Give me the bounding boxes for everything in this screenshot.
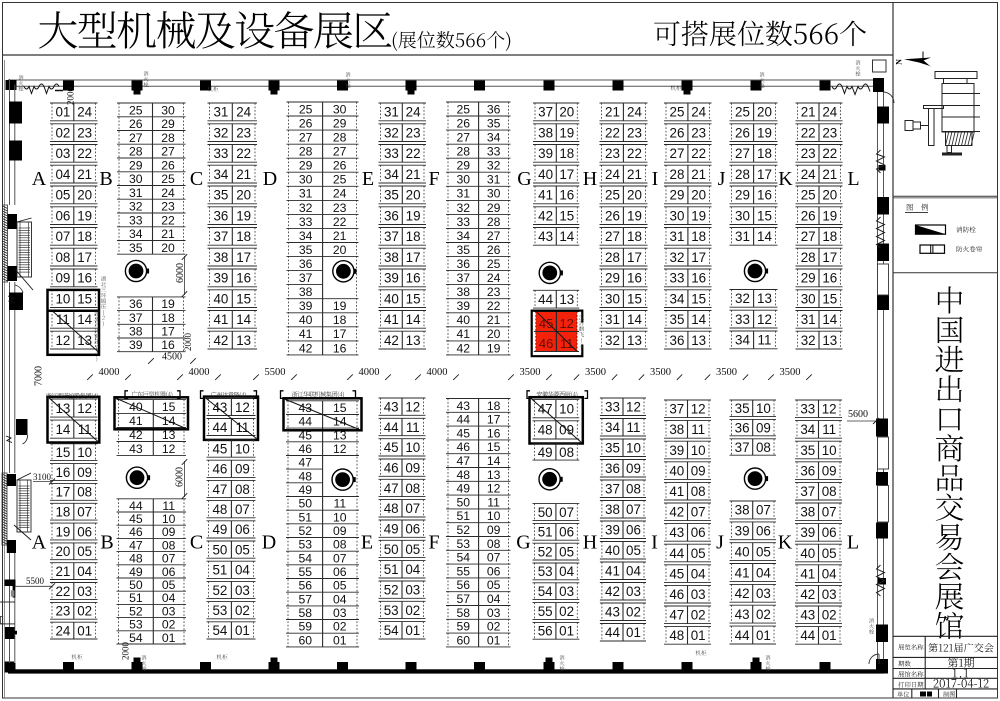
svg-text:03: 03 [822,587,837,602]
svg-text:24: 24 [801,167,816,182]
svg-text:29: 29 [487,201,501,215]
svg-text:60: 60 [457,633,471,647]
svg-text:32: 32 [384,125,399,140]
svg-text:08: 08 [691,484,706,499]
svg-text:11: 11 [333,497,346,511]
svg-text:51: 51 [129,591,143,605]
svg-text:36: 36 [457,257,471,271]
svg-text:13: 13 [487,468,501,482]
svg-text:23: 23 [161,200,175,214]
svg-text:25: 25 [487,257,501,271]
svg-text:50: 50 [538,505,553,520]
svg-text:46: 46 [129,525,143,539]
svg-text:11: 11 [162,499,175,513]
svg-text:36: 36 [735,420,750,435]
svg-text:47: 47 [538,402,553,417]
svg-text:47: 47 [457,454,471,468]
svg-text:34: 34 [735,333,750,348]
svg-text:03: 03 [487,606,501,620]
svg-text:6000: 6000 [175,467,186,487]
svg-text:12: 12 [822,402,837,417]
svg-text:03: 03 [626,584,641,599]
svg-text:09: 09 [162,525,176,539]
svg-text:45: 45 [212,441,227,456]
svg-text:27: 27 [457,131,471,145]
svg-text:05: 05 [77,544,92,559]
svg-text:26: 26 [801,208,816,223]
svg-text:32: 32 [213,125,228,140]
svg-text:08: 08 [822,484,837,499]
svg-text:15: 15 [236,291,251,306]
svg-text:22: 22 [487,299,501,313]
svg-text:46: 46 [539,336,553,351]
svg-text:L: L [847,168,859,190]
svg-text:17: 17 [822,250,837,265]
svg-text:33: 33 [800,402,815,417]
svg-text:45: 45 [384,440,399,455]
svg-text:19: 19 [333,299,347,313]
svg-text:43: 43 [212,400,227,415]
svg-text:35: 35 [129,241,143,255]
svg-text:21: 21 [406,167,421,182]
svg-text:31: 31 [801,312,816,327]
svg-text:60: 60 [299,633,313,647]
svg-text:03: 03 [333,606,347,620]
svg-text:26: 26 [129,117,143,131]
svg-text:44: 44 [299,415,313,429]
svg-text:13: 13 [236,333,251,348]
svg-text:20: 20 [406,188,421,203]
svg-text:36: 36 [213,208,228,223]
svg-text:20: 20 [236,188,251,203]
svg-text:04: 04 [333,592,347,606]
svg-text:01: 01 [756,628,771,643]
svg-text:50: 50 [212,542,227,557]
svg-text:30: 30 [735,208,750,223]
svg-text:26: 26 [333,159,347,173]
svg-text:4500: 4500 [162,352,182,363]
svg-text:23: 23 [605,146,620,161]
svg-text:51: 51 [457,509,471,523]
svg-text:37: 37 [800,484,815,499]
svg-text:17: 17 [55,485,70,500]
svg-text:44: 44 [129,499,143,513]
svg-text:04: 04 [756,565,771,580]
svg-text:04: 04 [77,564,92,579]
svg-text:20: 20 [757,105,772,120]
svg-text:02: 02 [626,605,641,620]
svg-text:06: 06 [235,522,250,537]
svg-text:07: 07 [333,551,347,565]
svg-text:40: 40 [669,463,684,478]
svg-text:13: 13 [627,333,642,348]
svg-text:14: 14 [822,312,837,327]
svg-text:26: 26 [487,243,501,257]
svg-text:40: 40 [605,543,620,558]
svg-text:3500: 3500 [520,367,541,378]
svg-text:47: 47 [299,456,313,470]
svg-text:25: 25 [801,188,816,203]
svg-text:05: 05 [405,542,420,557]
svg-text:30: 30 [605,291,620,306]
svg-text:H: H [583,168,597,190]
svg-text:08: 08 [55,250,70,265]
svg-text:42: 42 [800,587,815,602]
svg-text:28: 28 [161,131,175,145]
svg-text:17: 17 [161,325,175,339]
svg-text:33: 33 [213,146,228,161]
svg-text:39: 39 [538,146,553,161]
svg-text:04: 04 [235,563,250,578]
svg-text:16: 16 [333,341,347,355]
svg-text:22: 22 [691,146,706,161]
svg-text:29: 29 [735,188,750,203]
svg-text:28: 28 [605,250,620,265]
svg-text:35: 35 [213,188,228,203]
svg-text:29: 29 [605,271,620,286]
svg-text:23: 23 [55,604,70,619]
svg-text:G: G [516,532,530,554]
svg-text:16: 16 [406,271,421,286]
svg-text:56: 56 [538,624,553,639]
svg-text:23: 23 [801,146,816,161]
svg-text:59: 59 [457,620,471,634]
svg-text:41: 41 [800,566,815,581]
svg-text:04: 04 [626,564,641,579]
svg-text:34: 34 [213,167,228,182]
svg-text:38: 38 [669,422,684,437]
svg-text:31: 31 [129,186,143,200]
svg-text:3500: 3500 [650,367,671,378]
svg-text:27: 27 [801,229,816,244]
svg-text:36: 36 [800,463,815,478]
svg-text:K: K [778,168,793,190]
svg-text:43: 43 [129,442,143,456]
svg-text:37: 37 [129,311,143,325]
svg-text:27: 27 [735,146,750,161]
svg-text:39: 39 [457,299,471,313]
svg-text:01: 01 [77,623,92,638]
svg-text:36: 36 [384,208,399,223]
svg-text:02: 02 [405,603,420,618]
svg-text:18: 18 [236,229,251,244]
svg-text:46: 46 [212,462,227,477]
svg-text:56: 56 [457,578,471,592]
svg-text:04: 04 [162,591,176,605]
svg-text:48: 48 [212,502,227,517]
svg-text:40: 40 [384,291,399,306]
svg-text:01: 01 [626,625,641,640]
svg-text:16: 16 [757,188,772,203]
svg-text:28: 28 [670,167,685,182]
svg-text:E: E [362,168,374,190]
svg-text:20: 20 [333,243,347,257]
svg-text:18: 18 [487,399,501,413]
svg-text:48: 48 [299,469,313,483]
svg-text:33: 33 [384,146,399,161]
svg-text:04: 04 [822,566,837,581]
svg-text:21: 21 [55,564,70,579]
svg-text:44: 44 [457,413,471,427]
svg-text:23: 23 [487,285,501,299]
svg-text:06: 06 [55,208,70,223]
svg-text:08: 08 [559,445,574,460]
svg-text:16: 16 [627,271,642,286]
svg-text:24: 24 [605,167,620,182]
svg-text:25: 25 [605,188,620,203]
svg-text:I: I [651,532,658,554]
svg-text:15: 15 [333,401,347,415]
svg-text:53: 53 [212,603,227,618]
svg-text:17: 17 [333,327,347,341]
svg-text:42: 42 [384,333,399,348]
svg-text:49: 49 [129,565,143,579]
svg-text:51: 51 [299,510,313,524]
svg-text:10: 10 [333,510,347,524]
svg-text:27: 27 [161,145,175,159]
svg-text:29: 29 [299,159,313,173]
svg-text:01: 01 [487,633,501,647]
svg-text:02: 02 [559,604,574,619]
svg-text:22: 22 [406,146,421,161]
svg-text:26: 26 [670,125,685,140]
svg-text:18: 18 [559,146,574,161]
svg-text:24: 24 [77,105,92,120]
svg-text:08: 08 [487,537,501,551]
svg-text:05: 05 [333,579,347,593]
svg-text:31: 31 [299,187,313,201]
svg-text:3500: 3500 [585,367,606,378]
svg-text:15: 15 [55,445,70,460]
svg-text:B: B [100,532,113,554]
svg-text:40: 40 [299,313,313,327]
svg-text:06: 06 [77,524,92,539]
svg-text:19: 19 [487,341,501,355]
svg-text:06: 06 [626,523,641,538]
svg-text:26: 26 [299,117,313,131]
svg-text:36: 36 [487,102,501,116]
svg-text:30: 30 [333,102,347,116]
svg-text:52: 52 [384,583,399,598]
svg-text:58: 58 [457,606,471,620]
svg-text:03: 03 [235,583,250,598]
svg-text:44: 44 [800,628,815,643]
svg-text:49: 49 [457,482,471,496]
svg-text:47: 47 [212,482,227,497]
svg-text:25: 25 [670,105,685,120]
svg-text:03: 03 [162,604,176,618]
svg-text:23: 23 [77,125,92,140]
svg-text:35: 35 [670,312,685,327]
svg-text:12: 12 [405,400,420,415]
svg-text:37: 37 [605,482,620,497]
svg-text:49: 49 [299,483,313,497]
svg-text:32: 32 [129,200,143,214]
svg-text:53: 53 [538,564,553,579]
svg-text:41: 41 [384,312,399,327]
svg-text:36: 36 [299,257,313,271]
svg-text:17: 17 [559,167,574,182]
svg-text:21: 21 [801,105,816,120]
svg-text:06: 06 [691,525,706,540]
svg-text:26: 26 [735,125,750,140]
svg-text:25: 25 [161,172,175,186]
svg-text:H: H [583,532,597,554]
svg-text:50: 50 [384,542,399,557]
svg-text:4000: 4000 [189,367,210,378]
svg-text:41: 41 [605,564,620,579]
svg-text:24: 24 [406,105,421,120]
svg-text:11: 11 [487,495,500,509]
svg-text:29: 29 [129,158,143,172]
svg-text:25: 25 [299,102,313,116]
svg-text:58: 58 [299,606,313,620]
svg-text:13: 13 [406,333,421,348]
svg-text:K: K [778,532,793,554]
svg-text:38: 38 [538,125,553,140]
svg-text:07: 07 [626,502,641,517]
svg-text:27: 27 [670,146,685,161]
svg-text:38: 38 [213,250,228,265]
svg-text:53: 53 [129,618,143,632]
svg-text:16: 16 [559,188,574,203]
svg-text:19: 19 [55,524,70,539]
svg-text:05: 05 [559,544,574,559]
svg-text:07: 07 [559,505,574,520]
svg-text:34: 34 [605,420,620,435]
svg-text:07: 07 [77,505,92,520]
svg-text:27: 27 [299,131,313,145]
svg-text:56: 56 [299,579,313,593]
svg-text:29: 29 [161,117,175,131]
svg-text:E: E [361,532,373,554]
svg-text:09: 09 [626,461,641,476]
svg-text:07: 07 [487,551,501,565]
svg-text:01: 01 [55,105,70,120]
svg-text:04: 04 [559,564,574,579]
svg-text:38: 38 [384,250,399,265]
svg-text:33: 33 [605,400,620,415]
svg-text:30: 30 [487,187,501,201]
svg-text:3500: 3500 [716,367,737,378]
svg-text:08: 08 [162,538,176,552]
svg-text:15: 15 [77,291,92,306]
svg-text:36: 36 [129,297,143,311]
svg-text:2000: 2000 [66,87,76,106]
svg-text:45: 45 [129,512,143,526]
svg-text:40: 40 [800,546,815,561]
svg-text:38: 38 [129,325,143,339]
svg-text:20: 20 [161,241,175,255]
svg-text:14: 14 [55,422,70,437]
svg-text:48: 48 [669,628,684,643]
svg-text:43: 43 [800,608,815,623]
svg-text:12: 12 [626,400,641,415]
svg-text:55: 55 [299,565,313,579]
svg-text:4000: 4000 [427,367,448,378]
svg-text:20: 20 [55,544,70,559]
svg-text:39: 39 [605,523,620,538]
svg-text:16: 16 [487,426,501,440]
svg-text:15: 15 [627,291,642,306]
svg-text:32: 32 [487,159,501,173]
svg-text:30: 30 [801,291,816,306]
svg-text:37: 37 [538,105,553,120]
svg-text:28: 28 [487,215,501,229]
svg-text:09: 09 [487,523,501,537]
svg-text:38: 38 [457,285,471,299]
svg-text:23: 23 [691,125,706,140]
svg-text:21: 21 [487,313,501,327]
svg-text:01: 01 [405,623,420,638]
svg-text:10: 10 [559,402,574,417]
svg-text:28: 28 [333,131,347,145]
svg-text:24: 24 [691,105,706,120]
svg-text:12: 12 [333,442,347,456]
svg-text:49: 49 [212,522,227,537]
svg-text:18: 18 [77,229,92,244]
svg-text:14: 14 [627,312,642,327]
svg-text:39: 39 [669,443,684,458]
svg-text:22: 22 [77,146,92,161]
svg-text:22: 22 [801,125,816,140]
svg-text:48: 48 [457,468,471,482]
svg-text:06: 06 [756,524,771,539]
svg-text:37: 37 [457,271,471,285]
svg-text:09: 09 [756,420,771,435]
svg-text:G: G [517,168,531,190]
svg-text:06: 06 [162,565,176,579]
svg-text:34: 34 [800,422,815,437]
svg-text:48: 48 [129,552,143,566]
svg-text:30: 30 [129,172,143,186]
svg-text:28: 28 [129,145,143,159]
svg-text:24: 24 [236,105,251,120]
svg-text:44: 44 [735,628,750,643]
svg-text:33: 33 [670,271,685,286]
svg-text:12: 12 [487,482,501,496]
svg-text:01: 01 [559,624,574,639]
svg-text:14: 14 [559,229,574,244]
svg-text:16: 16 [77,271,92,286]
svg-text:32: 32 [801,333,816,348]
svg-text:18: 18 [691,229,706,244]
svg-text:39: 39 [735,524,750,539]
svg-text:08: 08 [77,485,92,500]
svg-text:11: 11 [560,336,574,351]
svg-text:09: 09 [405,461,420,476]
svg-text:54: 54 [129,631,143,645]
svg-text:20: 20 [77,188,92,203]
svg-text:21: 21 [236,167,251,182]
svg-text:09: 09 [55,271,70,286]
svg-text:28: 28 [457,145,471,159]
svg-text:23: 23 [333,201,347,215]
svg-text:2000: 2000 [121,642,131,661]
svg-text:17: 17 [691,250,706,265]
svg-text:18: 18 [161,311,175,325]
svg-text:07: 07 [691,505,706,520]
svg-text:15: 15 [757,208,772,223]
svg-text:06: 06 [405,522,420,537]
svg-text:19: 19 [559,125,574,140]
svg-text:41: 41 [129,414,143,428]
svg-text:14: 14 [77,312,92,327]
svg-text:03: 03 [691,587,706,602]
svg-text:41: 41 [457,327,471,341]
svg-text:02: 02 [235,603,250,618]
svg-text:54: 54 [299,551,313,565]
